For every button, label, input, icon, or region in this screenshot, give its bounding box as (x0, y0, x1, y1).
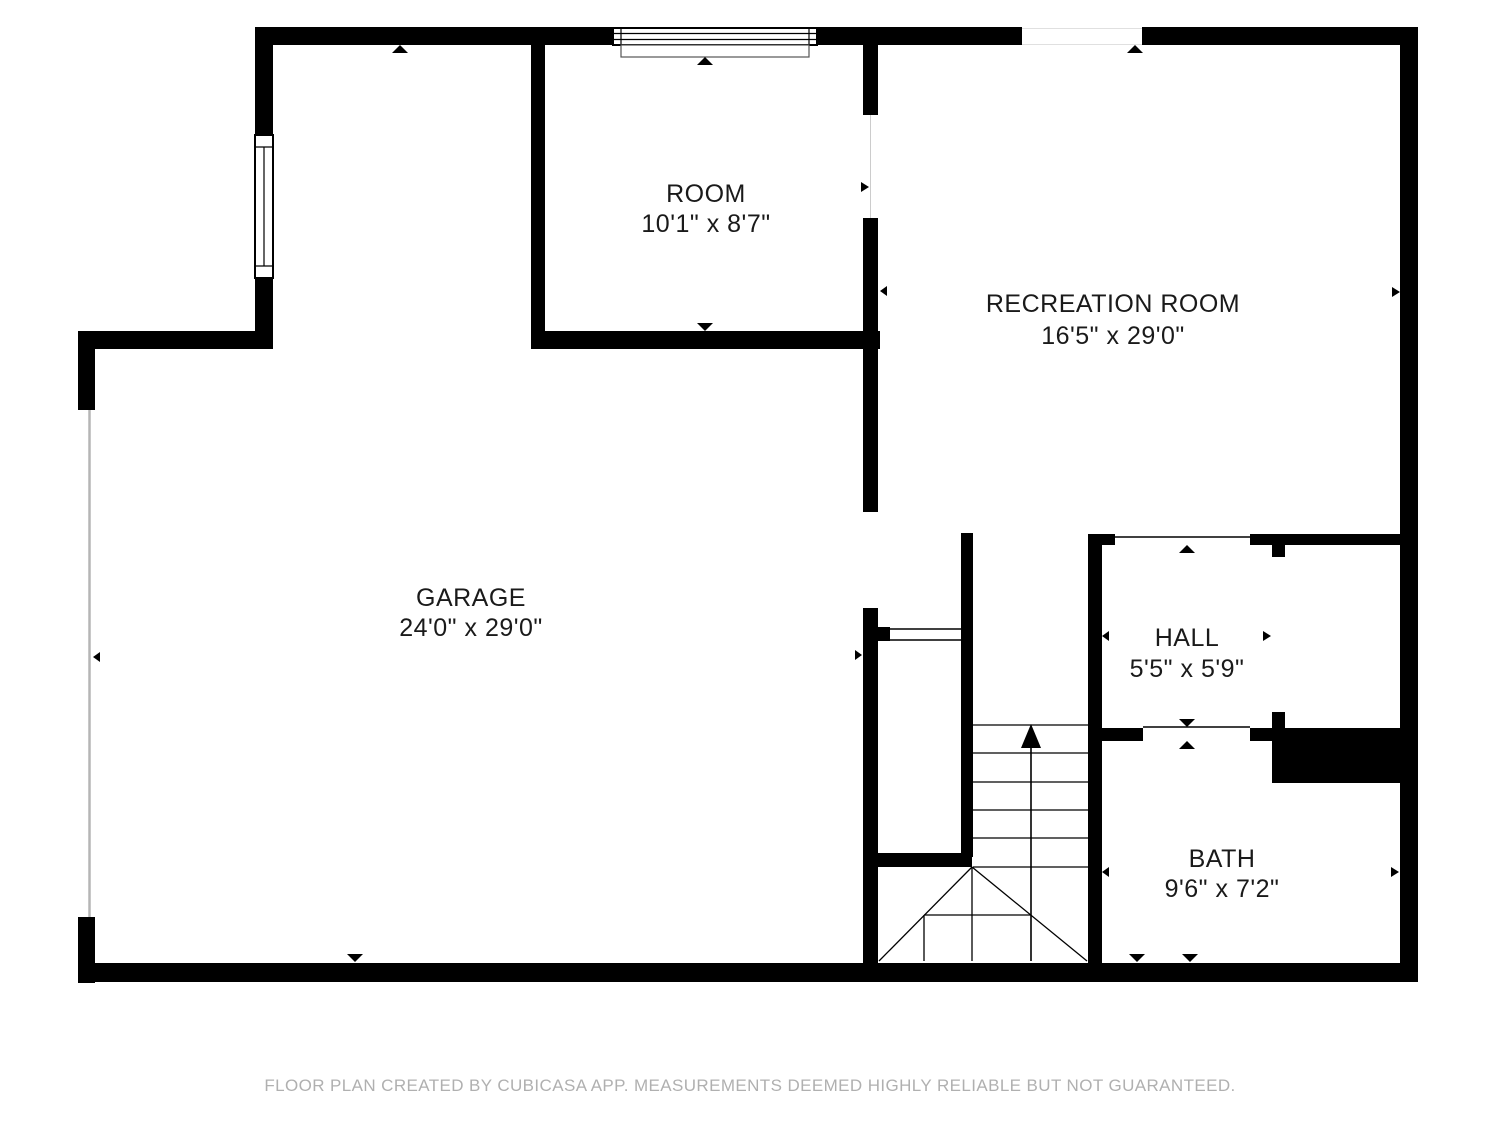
wall-left-upper-a (255, 27, 273, 135)
direction-marker-icon (1182, 954, 1198, 962)
winder-line (879, 867, 972, 961)
walls (78, 27, 1418, 983)
recreation-room-dimensions: 16'5" x 29'0" (1041, 322, 1185, 350)
stairs-up-arrow-icon (1021, 724, 1041, 961)
wall-hall-south-b (1250, 728, 1272, 741)
footer-disclaimer: FLOOR PLAN CREATED BY CUBICASA APP. MEAS… (264, 1076, 1235, 1095)
direction-marker-icon (392, 45, 408, 53)
direction-marker-icon (697, 323, 713, 331)
arrow-head (1021, 724, 1041, 748)
wall-hall-east-stub-bottom (1272, 712, 1285, 728)
wall-hall-south-a (1102, 728, 1143, 741)
wall-room-south (531, 331, 880, 349)
direction-marker-icon (855, 650, 862, 660)
wall-closet-south (878, 853, 972, 867)
window-frame (613, 28, 817, 45)
direction-marker-icon (1102, 867, 1109, 877)
wall-left-lower-a (78, 331, 95, 410)
bath-dimensions: 9'6" x 7'2" (1165, 875, 1280, 903)
window-sill (621, 45, 809, 57)
bath-label: BATH (1189, 845, 1256, 873)
wall-hall-east-stub-top (1272, 545, 1285, 557)
wall-divider-bottom (863, 608, 878, 964)
wall-hall-west (1088, 534, 1102, 963)
direction-marker-icon (1179, 741, 1195, 749)
wall-closet-stub (878, 627, 890, 641)
wall-top-left (255, 27, 613, 45)
direction-marker-icon (697, 57, 713, 65)
floor-plan-svg: ROOM 10'1" x 8'7" RECREATION ROOM 16'5" … (0, 0, 1500, 1125)
wall-hall-north-a (1088, 534, 1115, 545)
hall-dimensions: 5'5" x 5'9" (1130, 655, 1245, 683)
direction-marker-icon (93, 652, 100, 662)
wall-chase-block (1272, 728, 1418, 783)
winder-line (972, 867, 1087, 961)
recreation-room-label: RECREATION ROOM (986, 290, 1240, 318)
floor-plan-canvas: ROOM 10'1" x 8'7" RECREATION ROOM 16'5" … (0, 0, 1500, 1125)
garage-label: GARAGE (416, 584, 526, 612)
left-wall-window (255, 135, 273, 278)
garage-dimensions: 24'0" x 29'0" (399, 614, 543, 642)
room-dimensions: 10'1" x 8'7" (641, 210, 770, 238)
room-top-window (613, 28, 817, 57)
direction-marker-icon (1179, 719, 1195, 727)
direction-marker-icon (1263, 631, 1271, 641)
wall-top-right (1142, 27, 1418, 45)
wall-divider-mid (863, 218, 878, 512)
hall-label: HALL (1155, 624, 1220, 652)
direction-markers (93, 45, 1400, 962)
direction-marker-icon (1102, 631, 1109, 641)
wall-divider-top (863, 45, 878, 115)
direction-marker-icon (1391, 867, 1399, 877)
wall-bottom (78, 963, 1418, 982)
direction-marker-icon (1127, 45, 1143, 53)
wall-hall-north-b (1250, 534, 1400, 545)
wall-room-west (531, 45, 545, 332)
direction-marker-icon (861, 182, 869, 192)
wall-left-upper-b (255, 278, 273, 331)
direction-marker-icon (880, 286, 887, 296)
direction-marker-icon (1392, 287, 1400, 297)
wall-step (78, 331, 273, 349)
direction-marker-icon (347, 954, 363, 962)
room-label: ROOM (666, 180, 746, 208)
staircase (879, 724, 1088, 961)
direction-marker-icon (1129, 954, 1145, 962)
wall-top-mid (817, 27, 1022, 45)
direction-marker-icon (1179, 545, 1195, 553)
wall-right (1400, 27, 1418, 982)
wall-stairwell-west (961, 533, 973, 857)
